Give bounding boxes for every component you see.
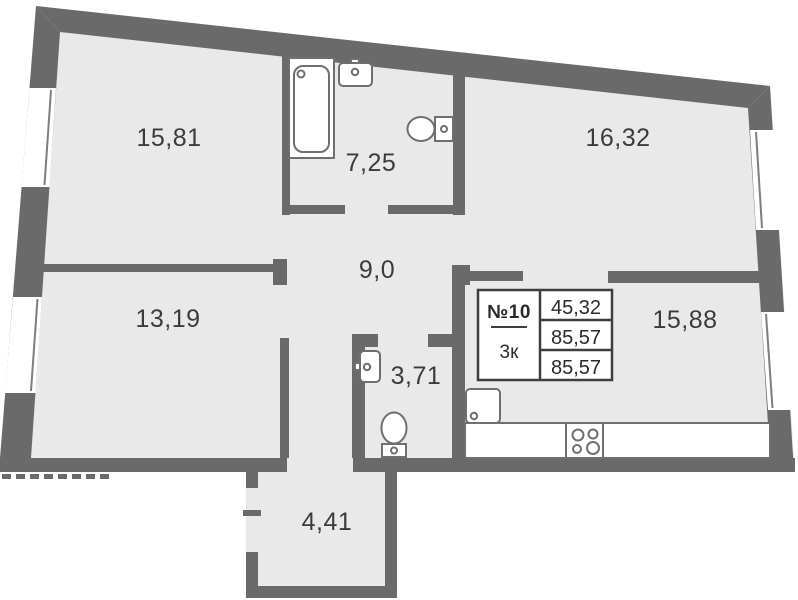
bathtub-icon [289, 58, 334, 158]
hall-wall-bottom [246, 586, 397, 598]
floor-plan-canvas: №10 3к 45,32 85,57 85,57 15,81 7,25 16,3… [0, 0, 798, 600]
kitchen-sink-icon [466, 389, 500, 423]
wall-bottom-left [0, 458, 287, 472]
wall-bedroom2-kitchen-right [608, 271, 759, 283]
wall-bath-corridor-right [388, 205, 458, 214]
wall-cap-bedroom3 [273, 259, 287, 285]
room-label-kitchen-living: 15,88 [652, 306, 717, 334]
wall-wc-top-left [352, 334, 378, 347]
unit-area-value-3: 85,57 [551, 357, 601, 379]
wall-cap-kitchen [452, 265, 470, 285]
room-label-bedroom-top-left: 15,81 [136, 124, 201, 152]
room-label-bedroom-bottom-left: 13,19 [135, 305, 200, 333]
wall-bottom-right [353, 458, 795, 472]
room-label-bathroom-small: 3,71 [391, 362, 442, 390]
unit-info-table: №10 3к 45,32 85,57 85,57 [478, 290, 612, 380]
toilet-small-icon [382, 413, 407, 458]
entrance-door-tick [243, 510, 261, 516]
room-label-entrance-hall: 4,41 [302, 508, 353, 536]
kitchen-counter [465, 423, 770, 458]
wall-wc-top-right [428, 334, 455, 347]
wall-bedroom2-kitchen-left [470, 271, 523, 281]
wall-kitchen-left [452, 265, 465, 458]
sink-icon [339, 59, 372, 86]
toilet-icon [408, 117, 454, 141]
unit-number: №10 [487, 302, 531, 323]
wall-bath-bedroom2 [453, 75, 465, 215]
unit-rooms-count: 3к [500, 342, 520, 363]
wall-bedroom3-hall [280, 338, 289, 458]
floor-plan-page: №10 3к 45,32 85,57 85,57 15,81 7,25 16,3… [0, 0, 798, 600]
wall-bedroom1-bedroom3 [42, 264, 273, 272]
unit-area-value-1: 45,32 [551, 297, 601, 319]
unit-area-value-2: 85,57 [551, 327, 601, 349]
hall-wall-left-upper [246, 472, 258, 488]
wall-bath-corridor-left [288, 205, 345, 214]
room-label-bathroom-large: 7,25 [346, 149, 397, 177]
room-label-corridor: 9,0 [359, 256, 395, 284]
room-label-bedroom-top-right: 16,32 [585, 124, 650, 152]
hall-wall-right [385, 472, 397, 598]
stove-icon [566, 423, 603, 458]
